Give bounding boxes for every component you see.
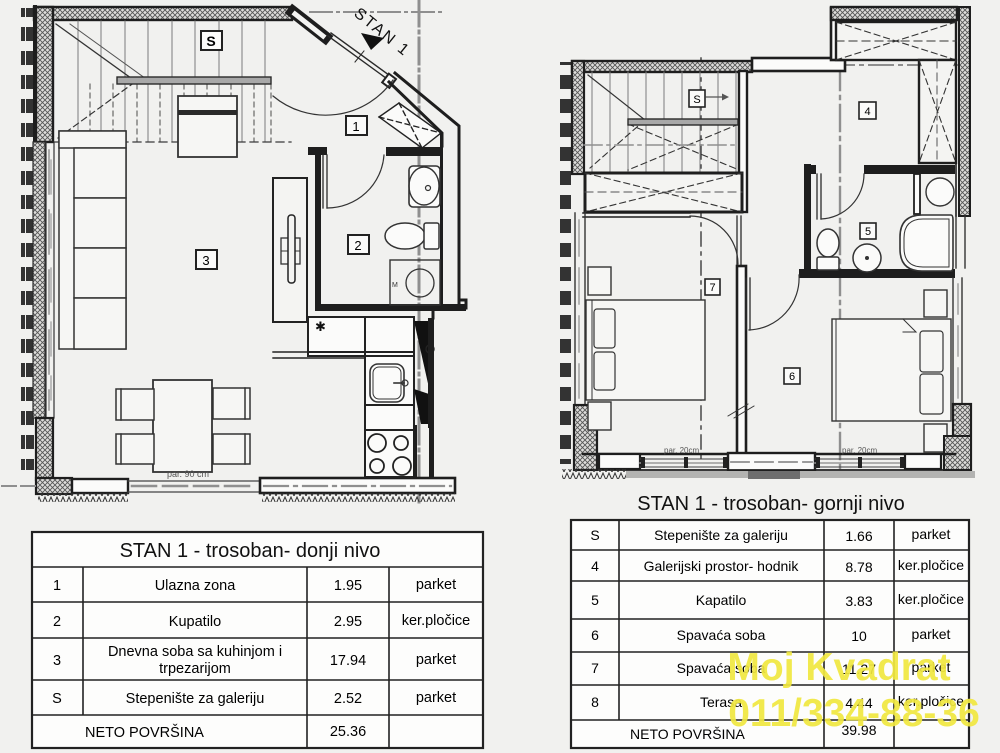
svg-text:4: 4 <box>864 106 870 118</box>
svg-text:parket: parket <box>912 526 951 542</box>
svg-text:Dnevna soba sa kuhinjom i: Dnevna soba sa kuhinjom i <box>108 644 282 660</box>
svg-text:trpezarijom: trpezarijom <box>159 661 231 677</box>
svg-text:S: S <box>206 33 215 49</box>
svg-text:5: 5 <box>865 226 871 238</box>
svg-text:1.95: 1.95 <box>334 578 362 594</box>
svg-text:Stepenište za galeriju: Stepenište za galeriju <box>126 691 265 707</box>
svg-text:✱: ✱ <box>315 319 326 334</box>
svg-text:1: 1 <box>352 119 359 134</box>
svg-text:3: 3 <box>53 653 61 669</box>
svg-text:3: 3 <box>202 253 209 268</box>
svg-text:Moj Kvadrat: Moj Kvadrat <box>727 646 950 689</box>
svg-text:S: S <box>52 691 62 707</box>
svg-text:par. 20cm: par. 20cm <box>664 446 699 455</box>
svg-text:Ulazna zona: Ulazna zona <box>155 578 237 594</box>
svg-text:Kapatilo: Kapatilo <box>696 592 747 608</box>
svg-text:STAN 1 - trosoban- donji nivo: STAN 1 - trosoban- donji nivo <box>120 540 381 562</box>
svg-text:2.95: 2.95 <box>334 614 362 630</box>
svg-text:M: M <box>392 282 398 289</box>
svg-text:17.94: 17.94 <box>330 653 366 669</box>
svg-text:1: 1 <box>53 578 61 594</box>
svg-text:6: 6 <box>789 371 795 383</box>
svg-text:ker.pločice: ker.pločice <box>402 613 471 629</box>
svg-text:8.78: 8.78 <box>845 559 872 575</box>
svg-text:8: 8 <box>591 694 599 710</box>
svg-text:S: S <box>693 94 700 106</box>
svg-text:parket: parket <box>416 690 456 706</box>
svg-text:6: 6 <box>591 627 599 643</box>
svg-text:Galerijski prostor- hodnik: Galerijski prostor- hodnik <box>644 558 800 574</box>
svg-text:011/334-88-36: 011/334-88-36 <box>728 692 980 735</box>
svg-text:2: 2 <box>354 238 361 253</box>
svg-text:par. 90 cm: par. 90 cm <box>167 469 209 479</box>
svg-text:par. 20cm: par. 20cm <box>842 446 877 455</box>
svg-text:ker.pločice: ker.pločice <box>898 591 964 607</box>
svg-text:NETO POVRŠINA: NETO POVRŠINA <box>85 724 204 741</box>
svg-text:7: 7 <box>709 282 715 294</box>
svg-text:10: 10 <box>851 628 867 644</box>
svg-text:3.83: 3.83 <box>845 593 872 609</box>
svg-text:2: 2 <box>53 614 61 630</box>
svg-text:5: 5 <box>591 592 599 608</box>
svg-text:2.52: 2.52 <box>334 691 362 707</box>
svg-text:7: 7 <box>591 660 599 676</box>
svg-text:4: 4 <box>591 558 599 574</box>
svg-text:parket: parket <box>416 577 456 593</box>
svg-text:Kupatilo: Kupatilo <box>169 614 221 630</box>
svg-text:parket: parket <box>416 652 456 668</box>
svg-text:STAN 1 - trosoban- gornji nivo: STAN 1 - trosoban- gornji nivo <box>637 493 905 515</box>
svg-text:25.36: 25.36 <box>330 724 366 740</box>
svg-text:parket: parket <box>912 626 951 642</box>
svg-text:Spavaća soba: Spavaća soba <box>677 627 766 643</box>
svg-text:1.66: 1.66 <box>845 528 872 544</box>
svg-text:S: S <box>590 527 599 543</box>
svg-text:ker.pločice: ker.pločice <box>898 557 964 573</box>
svg-text:Stepenište za galeriju: Stepenište za galeriju <box>654 527 788 543</box>
